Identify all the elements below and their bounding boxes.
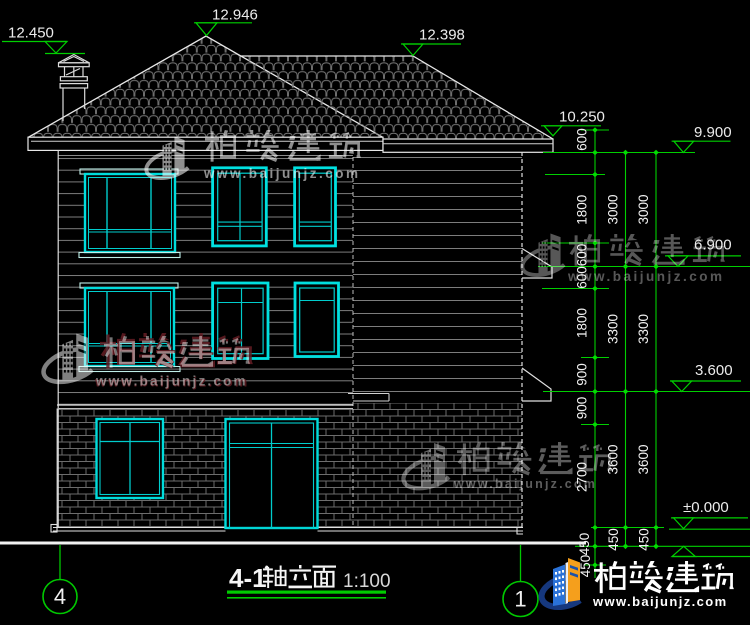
svg-text:3600: 3600 bbox=[636, 444, 651, 474]
svg-text:4-1: 4-1 bbox=[229, 563, 267, 593]
svg-text:www.baijunjz.com: www.baijunjz.com bbox=[95, 374, 248, 389]
svg-text:1800: 1800 bbox=[575, 195, 590, 225]
svg-text:3300: 3300 bbox=[636, 314, 651, 344]
svg-text:450: 450 bbox=[606, 528, 621, 551]
svg-text:3.600: 3.600 bbox=[695, 362, 733, 379]
svg-text:3300: 3300 bbox=[606, 314, 621, 344]
svg-text:12.450: 12.450 bbox=[8, 25, 54, 42]
svg-text:450: 450 bbox=[577, 533, 592, 556]
svg-text:www.baijunjz.com: www.baijunjz.com bbox=[567, 269, 725, 284]
svg-text:9.900: 9.900 bbox=[694, 124, 732, 141]
svg-text:12.946: 12.946 bbox=[212, 7, 258, 24]
svg-text:www.baijunjz.com: www.baijunjz.com bbox=[453, 477, 597, 491]
svg-text:www.baijunjz.com: www.baijunjz.com bbox=[592, 594, 728, 609]
svg-text:12.398: 12.398 bbox=[419, 27, 465, 44]
svg-text:450: 450 bbox=[578, 555, 593, 578]
svg-text:www.baijunjz.com: www.baijunjz.com bbox=[203, 166, 361, 181]
svg-text:±0.000: ±0.000 bbox=[683, 499, 729, 516]
svg-text:1: 1 bbox=[514, 587, 526, 612]
svg-text:4: 4 bbox=[54, 584, 66, 609]
svg-text:1800: 1800 bbox=[575, 308, 590, 338]
svg-text:450: 450 bbox=[637, 528, 652, 551]
svg-text:1:100: 1:100 bbox=[343, 571, 391, 592]
svg-text:900: 900 bbox=[575, 397, 590, 420]
svg-text:3000: 3000 bbox=[636, 194, 651, 224]
svg-text:3000: 3000 bbox=[606, 194, 621, 224]
svg-text:600: 600 bbox=[575, 128, 590, 151]
svg-text:900: 900 bbox=[575, 363, 590, 386]
svg-text:10.250: 10.250 bbox=[559, 109, 605, 126]
